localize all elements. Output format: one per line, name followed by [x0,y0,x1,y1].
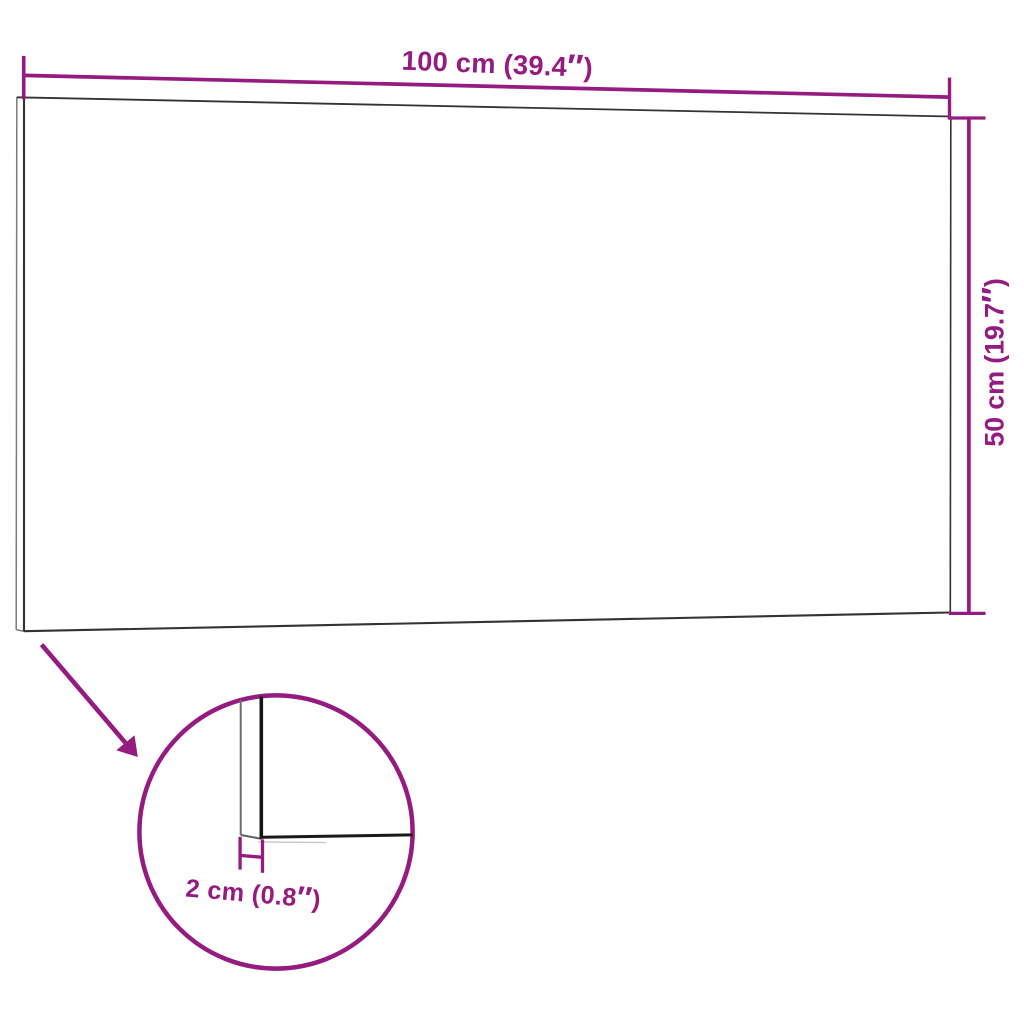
svg-text:50 cm (19.7″): 50 cm (19.7″) [975,278,1013,446]
